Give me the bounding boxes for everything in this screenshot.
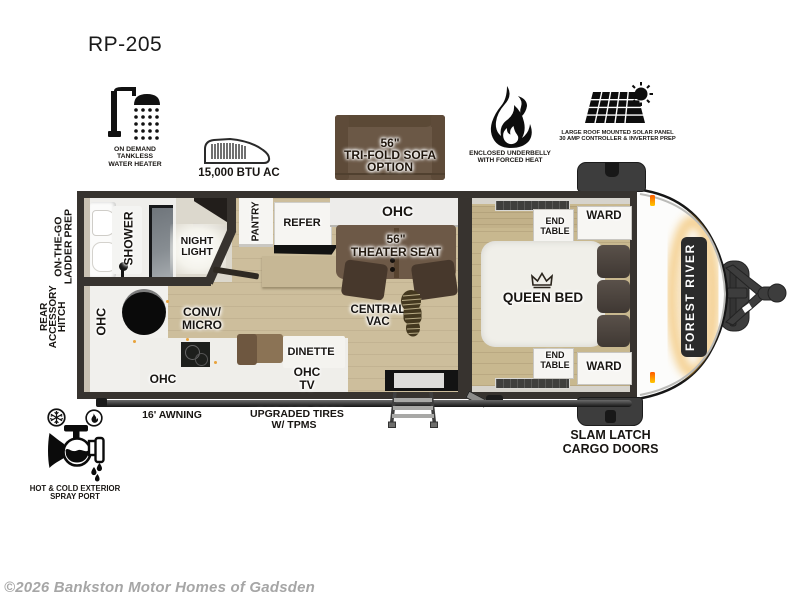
- svg-text:FOREST RIVER: FOREST RIVER: [683, 243, 697, 351]
